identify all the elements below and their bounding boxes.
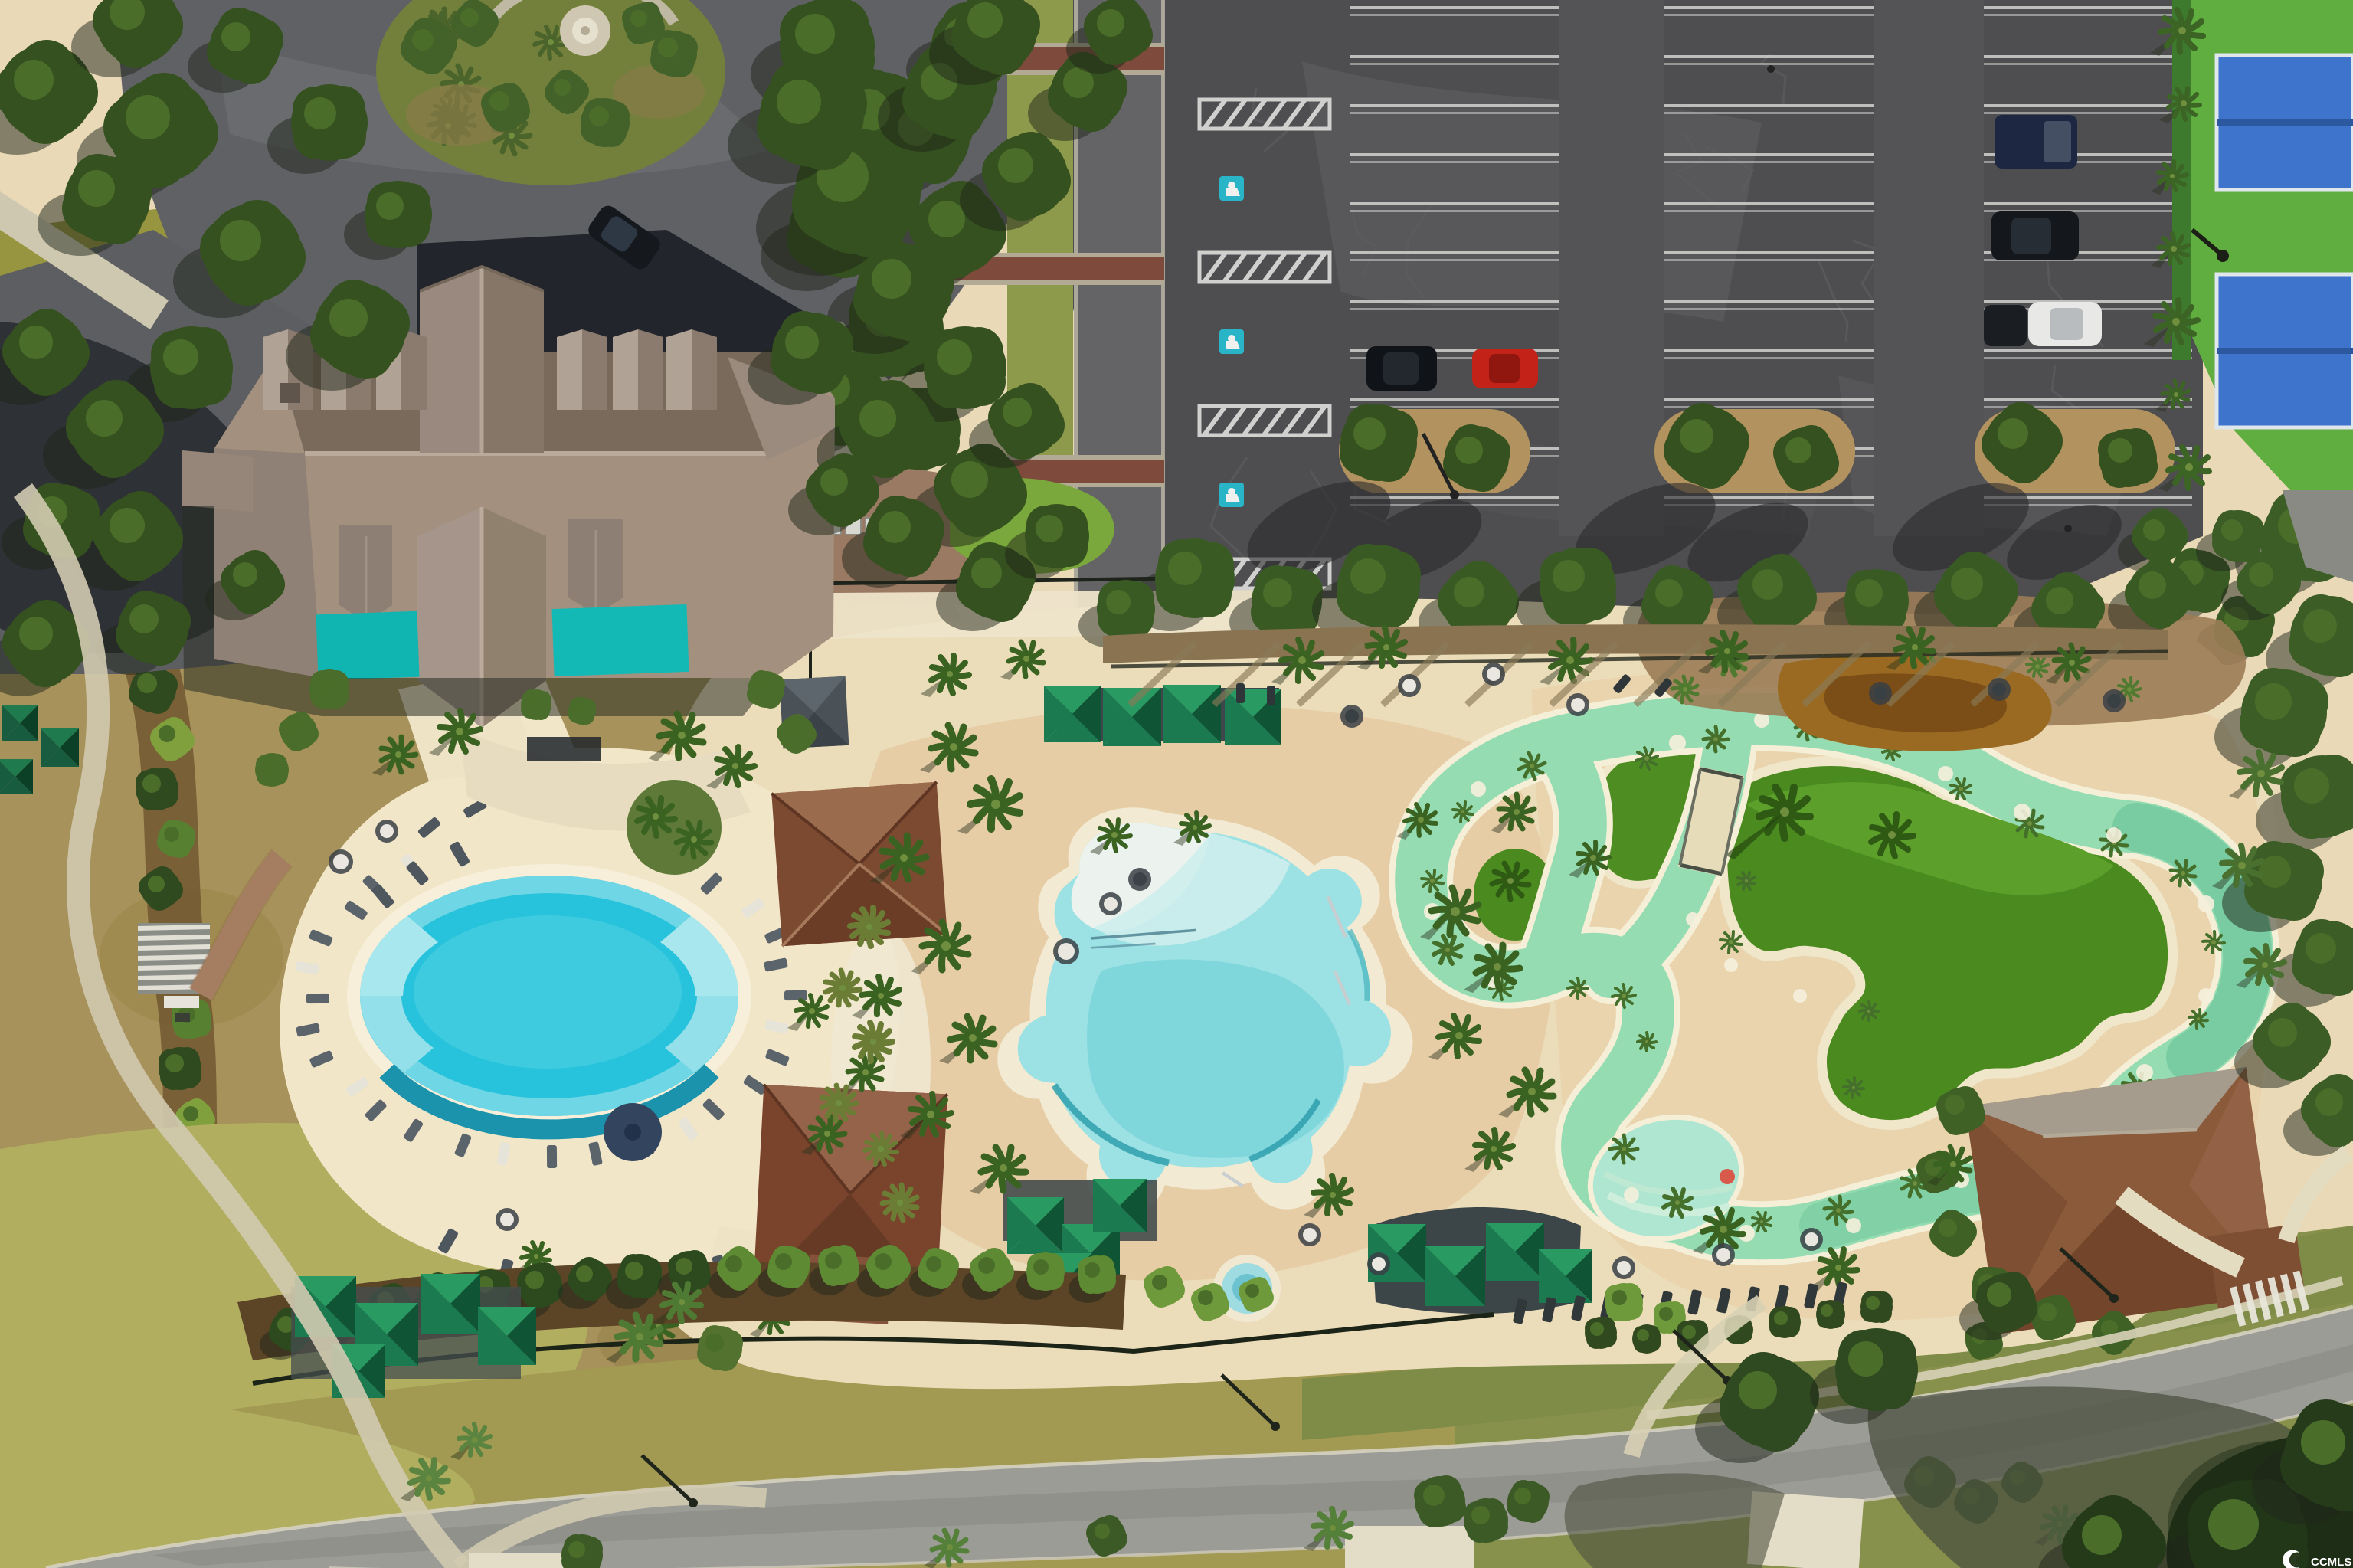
- svg-text:CCMLS: CCMLS: [2311, 1556, 2351, 1568]
